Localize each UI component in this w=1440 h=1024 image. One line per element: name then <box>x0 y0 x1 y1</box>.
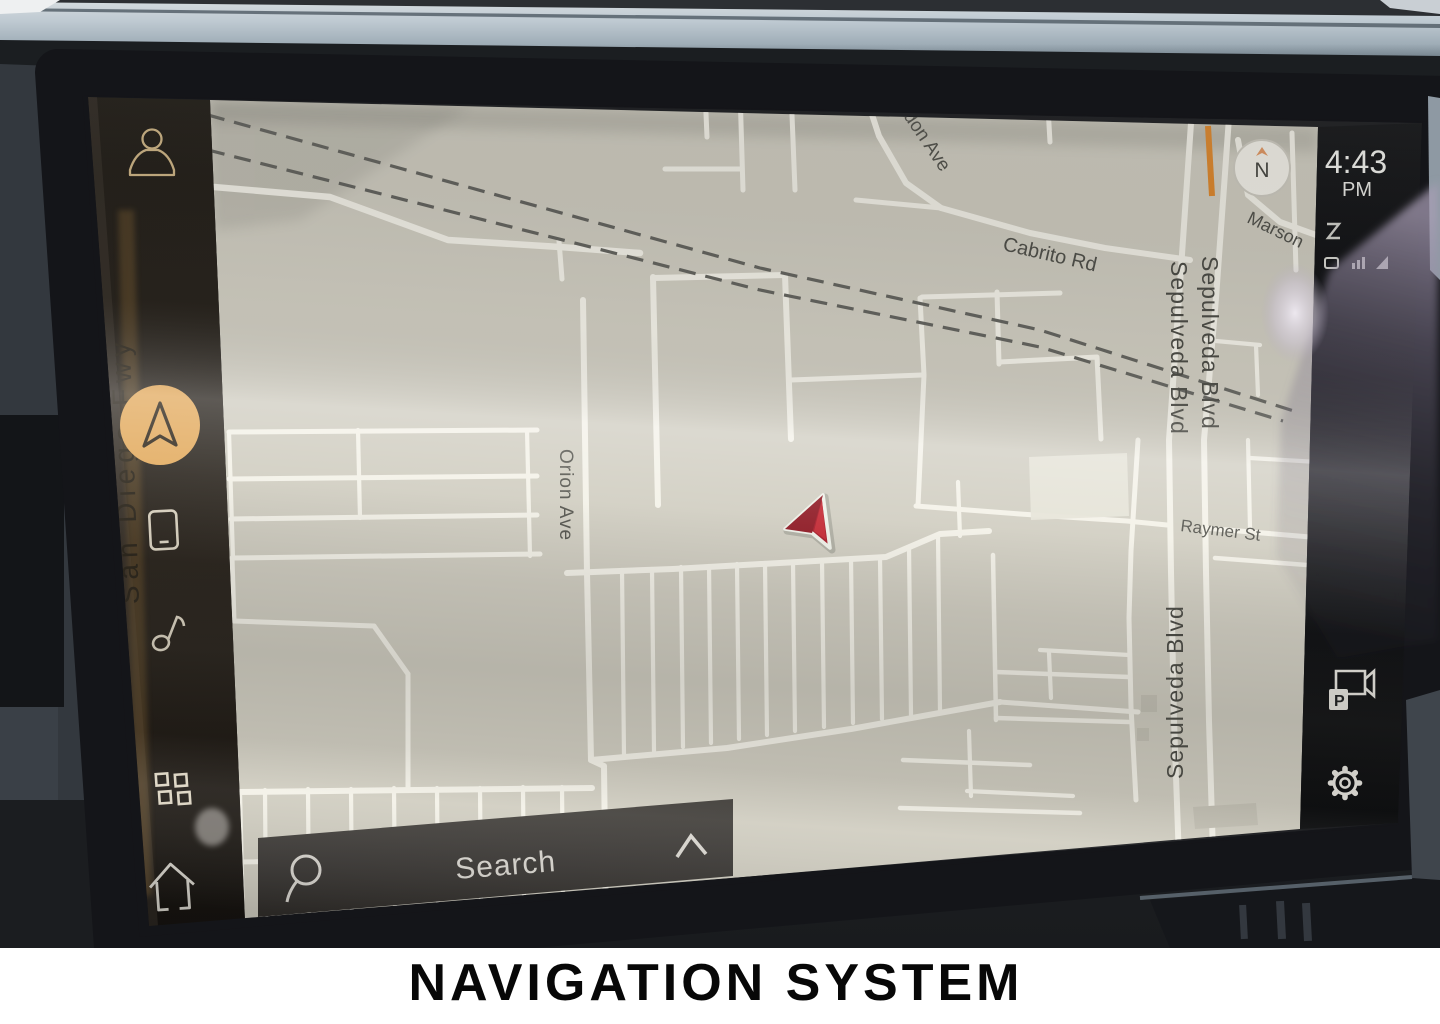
svg-text:NAVIGATION SYSTEM: NAVIGATION SYSTEM <box>409 954 1024 1012</box>
